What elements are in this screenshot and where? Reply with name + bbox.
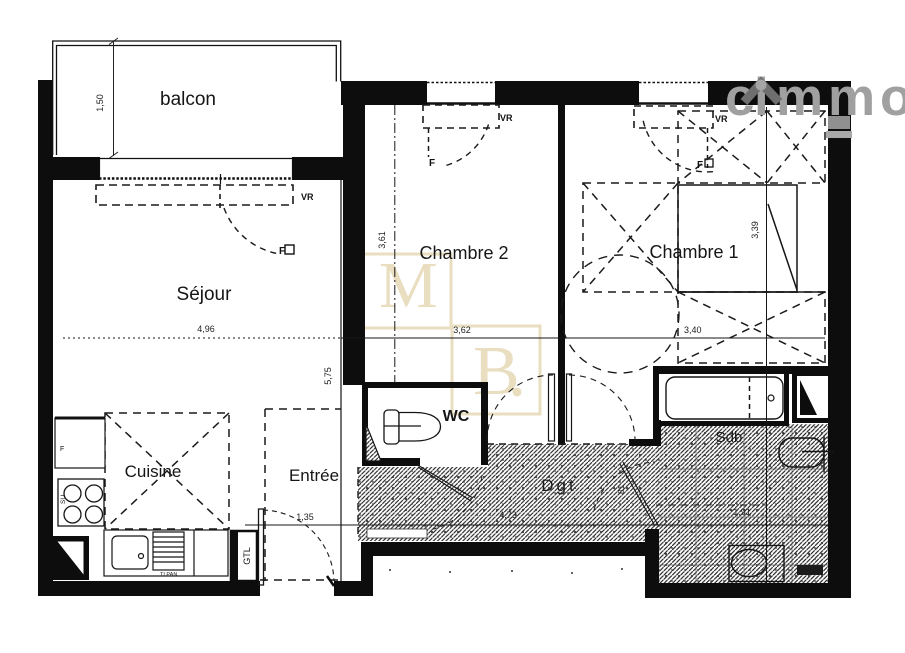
svg-text:1,35: 1,35 xyxy=(296,512,314,522)
svg-text:3,62: 3,62 xyxy=(453,325,471,335)
svg-text:Entrée: Entrée xyxy=(289,466,339,485)
svg-text:81: 81 xyxy=(617,485,626,494)
svg-text:WC: WC xyxy=(443,408,470,425)
svg-text:VR: VR xyxy=(301,192,314,202)
svg-text:Dgt: Dgt xyxy=(541,476,576,495)
svg-text:F: F xyxy=(429,158,435,169)
svg-text:Chambre 1: Chambre 1 xyxy=(649,242,738,262)
svg-text:SU: SU xyxy=(60,495,67,504)
svg-text:3,39: 3,39 xyxy=(750,221,760,239)
svg-text:F: F xyxy=(279,246,285,257)
svg-text:m: m xyxy=(776,68,823,127)
svg-text:VR: VR xyxy=(500,113,513,123)
svg-text:Cuisine: Cuisine xyxy=(125,462,182,481)
svg-text:1,91: 1,91 xyxy=(733,507,751,517)
svg-text:5,75: 5,75 xyxy=(323,367,333,385)
svg-text:4,73: 4,73 xyxy=(499,510,517,520)
svg-text:4,96: 4,96 xyxy=(197,324,215,334)
svg-text:Sdb: Sdb xyxy=(716,429,743,446)
svg-text:GTL: GTL xyxy=(242,547,252,565)
svg-text:F: F xyxy=(60,446,64,453)
svg-text:Chambre 2: Chambre 2 xyxy=(419,243,508,263)
svg-text:B: B xyxy=(473,333,520,410)
svg-text:balcon: balcon xyxy=(160,89,216,110)
svg-text:3,61: 3,61 xyxy=(377,231,387,249)
svg-text:Séjour: Séjour xyxy=(177,284,233,305)
svg-text:1,50: 1,50 xyxy=(95,94,105,112)
svg-text:3,40: 3,40 xyxy=(684,325,702,335)
svg-text:o: o xyxy=(880,68,905,127)
svg-text:TI PAN: TI PAN xyxy=(160,572,177,578)
